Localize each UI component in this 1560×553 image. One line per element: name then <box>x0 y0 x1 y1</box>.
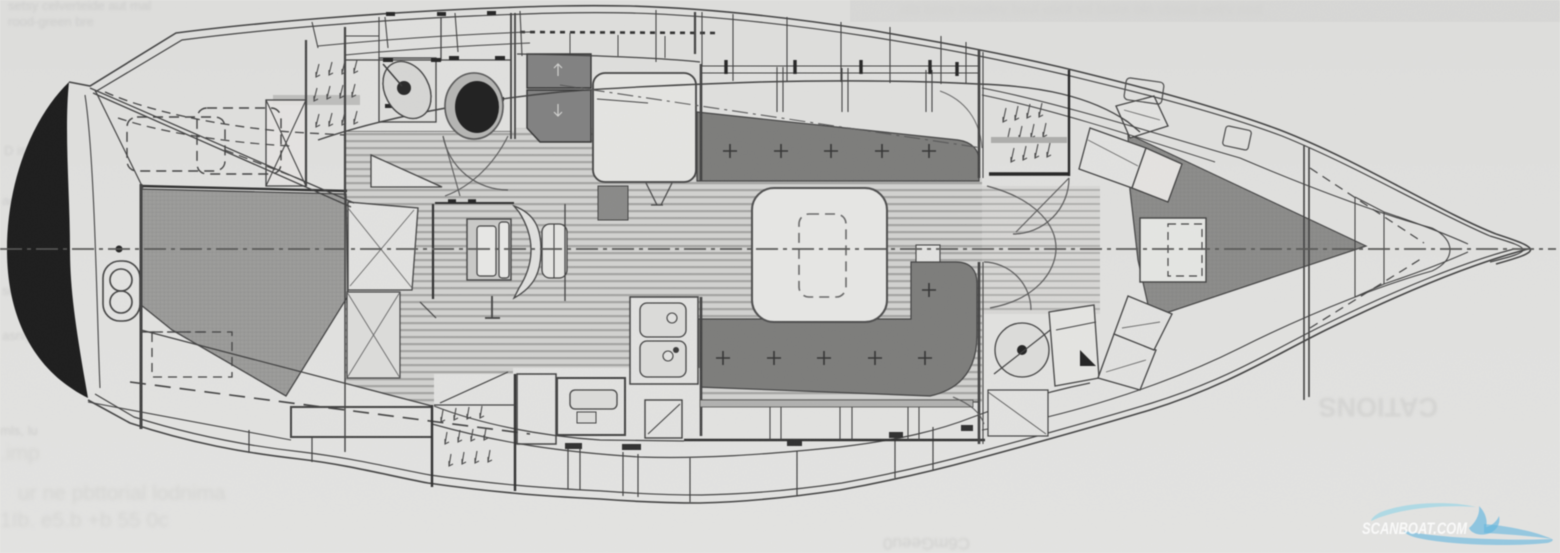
svg-text:SCANBOAT.COM: SCANBOAT.COM <box>1362 519 1468 538</box>
